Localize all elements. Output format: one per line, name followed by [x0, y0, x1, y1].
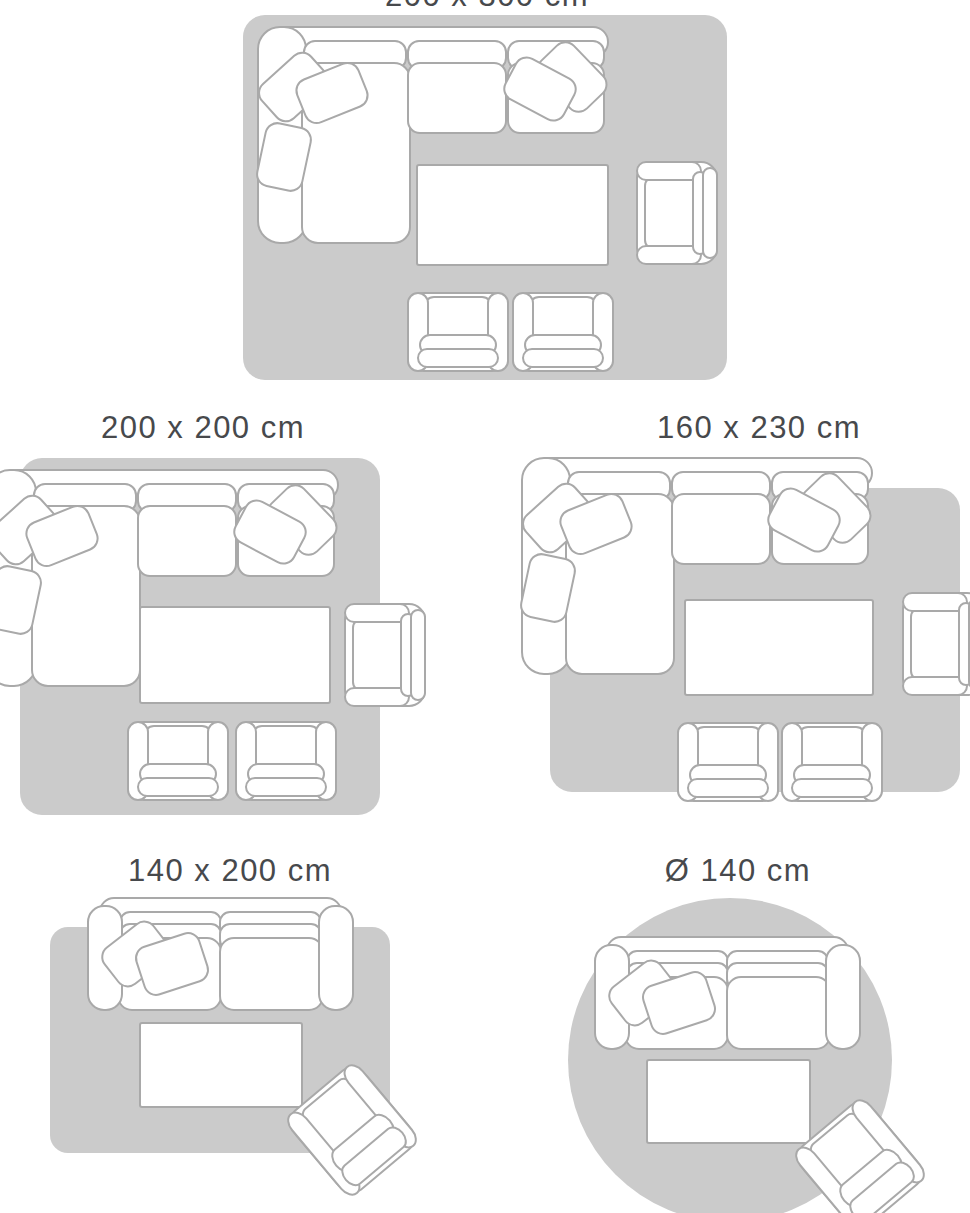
coffee-table [685, 600, 873, 695]
size-label-160x230: 160 x 230 cm [657, 410, 861, 446]
coffee-table [140, 1023, 302, 1107]
footstool-chair [782, 723, 882, 801]
size-label-140x200: 140 x 200 cm [128, 853, 332, 889]
footstool-chair [513, 293, 613, 371]
size-label-200x300: 200 x 300 cm [385, 0, 589, 14]
layout-200x200-diagram [0, 458, 425, 815]
armchair [345, 604, 425, 706]
size-label-200x200: 200 x 200 cm [101, 410, 305, 446]
coffee-table [647, 1060, 810, 1143]
coffee-table [417, 165, 608, 265]
size-label-round-140: Ø 140 cm [665, 853, 811, 889]
layout-140x200-diagram [50, 898, 420, 1199]
footstool-chair [236, 722, 336, 800]
layout-200x300-diagram [243, 15, 727, 380]
two-seat-sofa [88, 898, 353, 1010]
two-seat-sofa [595, 937, 860, 1049]
rug-size-guide: 200 x 300 cm 200 x 200 cm 160 x 230 cm 1… [0, 0, 970, 1213]
layout-160x230-diagram [518, 458, 970, 801]
footstool-chair [678, 723, 778, 801]
coffee-table [140, 607, 330, 703]
armchair [637, 162, 717, 264]
layout-round-140-diagram [568, 898, 928, 1213]
armchair [903, 593, 970, 695]
footstool-chair [128, 722, 228, 800]
rug-layouts-illustration [0, 0, 970, 1213]
footstool-chair [408, 293, 508, 371]
